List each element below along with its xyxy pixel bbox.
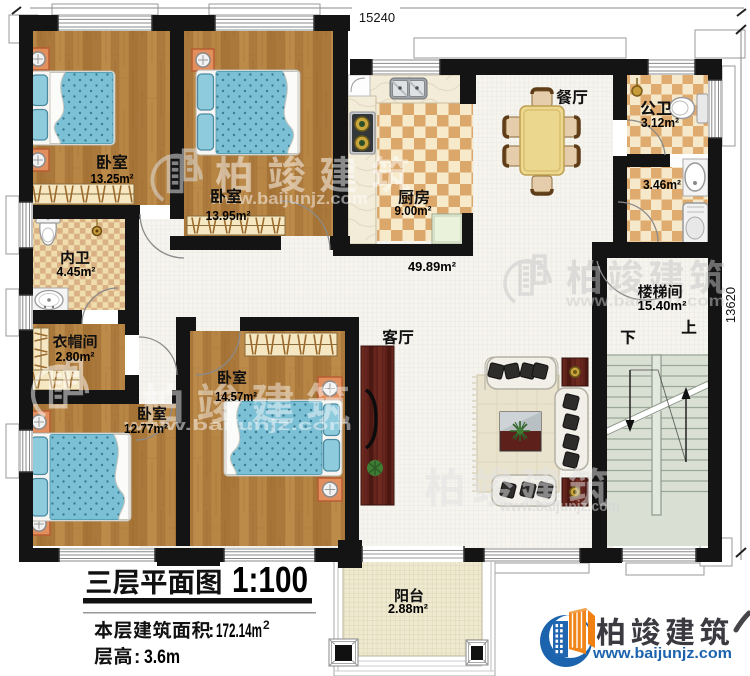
svg-text:14.57m²: 14.57m² [215,390,257,404]
svg-text:www.baijunjz.com: www.baijunjz.com [592,646,732,662]
svg-text:13620: 13620 [723,287,738,323]
svg-text:172.14m: 172.14m [216,621,262,642]
svg-text:3.12m²: 3.12m² [641,116,679,130]
svg-text:2.80m²: 2.80m² [56,350,95,364]
svg-text:3.46m²: 3.46m² [643,177,682,192]
svg-text:49.89m²: 49.89m² [408,259,457,274]
svg-text:15.40m²: 15.40m² [638,299,687,313]
svg-text:4.45m²: 4.45m² [57,265,96,279]
svg-text::: : [208,621,214,642]
svg-text:9.00m²: 9.00m² [395,204,432,218]
svg-text:2: 2 [263,618,270,632]
svg-text:www.baijunjz.com: www.baijunjz.com [499,498,620,515]
svg-text:3.6m: 3.6m [144,647,180,668]
svg-text::: : [134,647,140,668]
svg-text:12.77m²: 12.77m² [124,422,168,436]
svg-text:1:100: 1:100 [232,559,308,600]
svg-text:15240: 15240 [359,10,395,25]
svg-text:13.25m²: 13.25m² [91,172,134,186]
svg-text:2.88m²: 2.88m² [388,602,428,616]
svg-text:13.95m²: 13.95m² [206,209,251,223]
